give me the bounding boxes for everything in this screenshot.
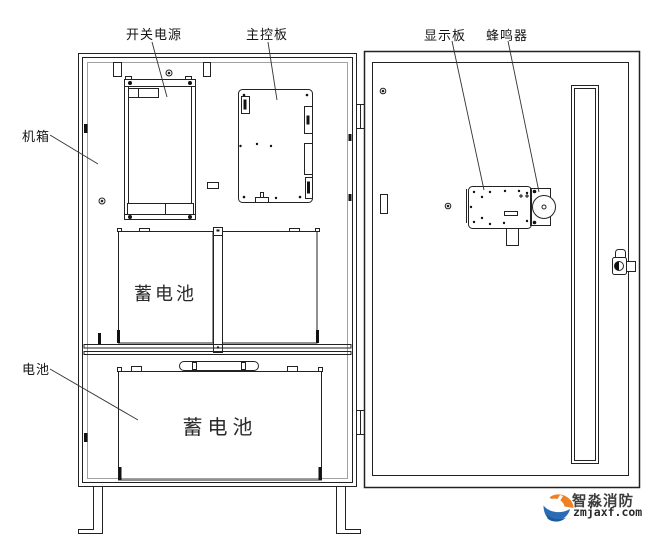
cabinet-layout-diagram: 开关电源 主控板 显示板 蜂鸣器 机箱 电池 蓄电池 蓄电池 智淼消防 zmja… [0,0,670,546]
callout-buzzer: 蜂鸣器 [486,25,528,44]
callout-power-supply: 开关电源 [126,24,182,43]
logo-icon [544,494,574,521]
callout-chassis: 机箱 [22,126,50,145]
callout-battery: 电池 [22,359,50,378]
main-board-drawing [239,90,313,203]
door-latch-drawing [613,250,636,275]
buzzer-drawing [531,189,556,226]
lower-battery-label: 蓄电池 [118,411,322,440]
center-strut [214,236,223,353]
power-supply-drawing [125,77,196,220]
upper-battery-label: 蓄电池 [118,280,213,306]
display-board-drawing [467,187,556,246]
logo-domain-text: zmjaxf.com [573,505,642,519]
connector [305,144,313,175]
knockout-slot [208,183,219,189]
right-leg [337,487,361,534]
callout-main-board: 主控板 [246,24,288,43]
door-drawing [357,52,640,488]
left-leg [79,487,103,534]
door-window-slot [572,86,599,464]
callout-leader-lines [50,41,539,420]
door-slot [381,195,388,214]
vent-slot-left [114,63,122,77]
callout-display-board: 显示板 [424,25,466,44]
diagram-canvas [0,0,670,546]
cabinet-legs [79,487,361,534]
terminal-block [129,89,159,98]
battery-handle [180,362,259,371]
vent-slot-right [204,63,211,77]
ribbon-tab [507,229,519,246]
